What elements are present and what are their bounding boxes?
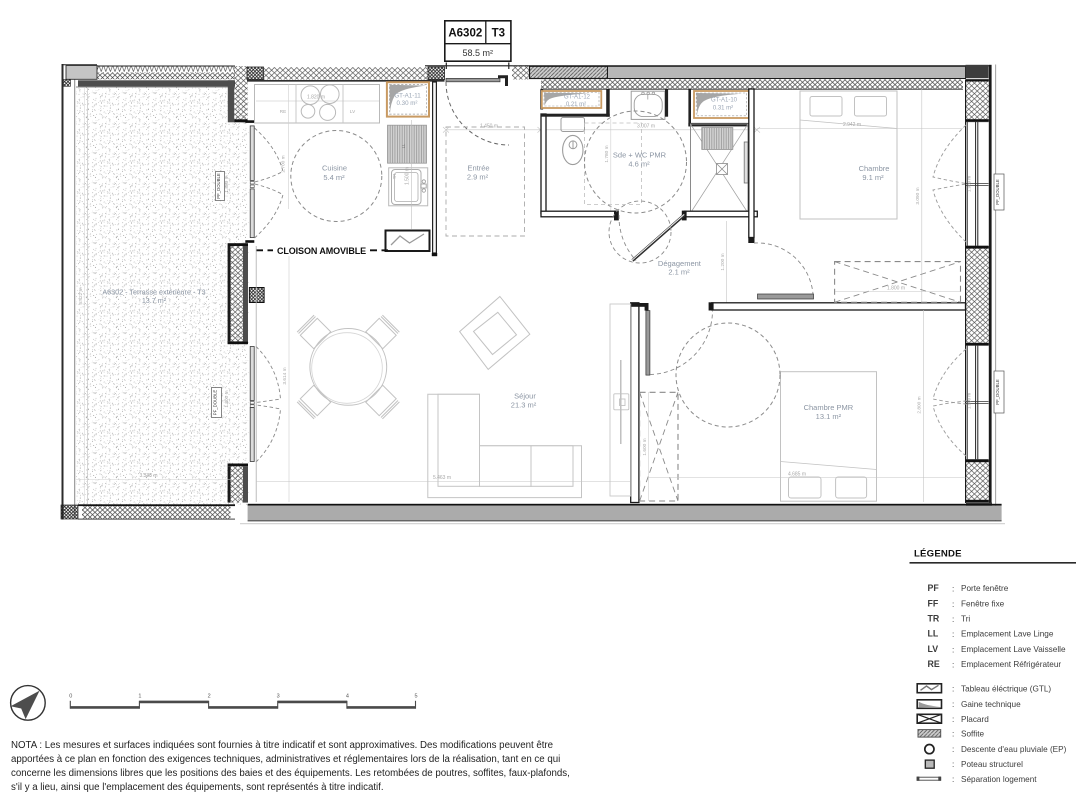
svg-text:1.600 m: 1.600 m — [642, 438, 648, 455]
svg-text::: : — [952, 715, 954, 724]
svg-text:Tri: Tri — [961, 615, 970, 624]
svg-text:0: 0 — [69, 694, 72, 700]
svg-text:1.800 m: 1.800 m — [224, 390, 230, 407]
svg-text:1.980 m: 1.980 m — [967, 176, 972, 193]
svg-text:3.614 m: 3.614 m — [282, 367, 288, 384]
svg-text:RE: RE — [928, 659, 940, 669]
svg-text:Poteau structurel: Poteau structurel — [961, 760, 1023, 769]
svg-text:Cuisine: Cuisine — [322, 164, 347, 173]
svg-text:A6302: A6302 — [448, 28, 482, 40]
svg-text:Emplacement Réfrigérateur: Emplacement Réfrigérateur — [961, 660, 1061, 669]
svg-text:LV: LV — [928, 644, 939, 654]
svg-text:5: 5 — [414, 694, 417, 700]
svg-text:2.1 m²: 2.1 m² — [668, 268, 690, 277]
svg-text::: : — [952, 661, 954, 670]
svg-text:2.800 m: 2.800 m — [917, 396, 923, 413]
svg-text::: : — [952, 700, 954, 709]
svg-text:CLOISON AMOVIBLE: CLOISON AMOVIBLE — [277, 246, 366, 256]
svg-text::: : — [952, 630, 954, 639]
svg-text:concerne les dimensions libres: concerne les dimensions libres que les p… — [11, 768, 570, 779]
svg-text:LL: LL — [401, 143, 406, 148]
svg-text:1.200 m: 1.200 m — [720, 253, 726, 270]
svg-text:Sde + WC PMR: Sde + WC PMR — [613, 151, 667, 160]
svg-text:4.685 m: 4.685 m — [788, 471, 806, 477]
svg-text:TR: TR — [392, 174, 397, 180]
svg-text:GT-A1-10: GT-A1-10 — [711, 98, 738, 104]
svg-text:13.7 m²: 13.7 m² — [142, 296, 167, 305]
svg-text::: : — [952, 760, 954, 769]
svg-text:3.090 m: 3.090 m — [915, 187, 921, 204]
svg-text:PF_DOUBLE: PF_DOUBLE — [216, 173, 221, 199]
svg-text:3.348 m: 3.348 m — [139, 473, 157, 479]
svg-text:FF: FF — [928, 598, 939, 608]
svg-text:PF: PF — [928, 583, 940, 593]
svg-text:1.820 m: 1.820 m — [307, 95, 325, 101]
svg-text:T3: T3 — [492, 28, 505, 40]
svg-text:3.007 m: 3.007 m — [637, 124, 655, 130]
svg-text:PF_DOUBLE: PF_DOUBLE — [995, 179, 1000, 205]
svg-text:5.4 m²: 5.4 m² — [323, 173, 345, 182]
svg-text:GT-A1-11: GT-A1-11 — [394, 92, 421, 99]
svg-text:1.800 m: 1.800 m — [887, 286, 905, 292]
svg-text:Emplacement Lave Vaisselle: Emplacement Lave Vaisselle — [961, 645, 1066, 654]
svg-text:2: 2 — [208, 694, 211, 700]
svg-text:5.422 m: 5.422 m — [78, 287, 84, 304]
svg-text:4.6 m²: 4.6 m² — [628, 160, 650, 169]
svg-text::: : — [952, 645, 954, 654]
svg-text:PF_DOUBLE: PF_DOUBLE — [995, 379, 1000, 405]
svg-text:1: 1 — [138, 694, 141, 700]
svg-text:LL: LL — [928, 629, 939, 639]
svg-text::: : — [952, 615, 954, 624]
svg-text:GT-A1-12: GT-A1-12 — [564, 95, 591, 101]
svg-text:Chambre: Chambre — [859, 164, 890, 173]
svg-text:21.3 m²: 21.3 m² — [511, 401, 537, 410]
svg-text:Tableau éléctrique (GTL): Tableau éléctrique (GTL) — [961, 685, 1051, 694]
svg-text::: : — [952, 745, 954, 754]
svg-text:2.700 m: 2.700 m — [281, 155, 287, 172]
svg-text:Emplacement Lave Linge: Emplacement Lave Linge — [961, 630, 1054, 639]
svg-text:1.780 m: 1.780 m — [604, 145, 610, 162]
svg-text::: : — [952, 775, 954, 784]
svg-text:LÉGENDE: LÉGENDE — [914, 548, 962, 560]
svg-text:0.31 m²: 0.31 m² — [713, 106, 733, 112]
svg-text:1.450 m: 1.450 m — [480, 124, 498, 130]
svg-text:Séjour: Séjour — [514, 392, 536, 401]
svg-text:0.30 m²: 0.30 m² — [397, 100, 418, 107]
svg-text:apportées à ce plan en fonctio: apportées à ce plan en fonction des exig… — [11, 754, 560, 765]
svg-text::: : — [952, 585, 954, 594]
svg-text:Entrée: Entrée — [467, 164, 489, 173]
svg-text:Descente d'eau pluviale (EP): Descente d'eau pluviale (EP) — [961, 745, 1067, 754]
svg-text:3: 3 — [277, 694, 280, 700]
svg-text:NOTA : Les mesures et surfaces: NOTA : Les mesures et surfaces indiquées… — [11, 740, 553, 751]
svg-text:s'il y a lieu, ainsi que l'emp: s'il y a lieu, ainsi que l'emplacement d… — [11, 782, 384, 793]
svg-text:RE: RE — [280, 109, 286, 114]
svg-text:Placard: Placard — [961, 715, 989, 724]
svg-text::: : — [952, 729, 954, 738]
svg-text:Séparation logement: Séparation logement — [961, 775, 1037, 784]
svg-text:Soffite: Soffite — [961, 729, 985, 738]
svg-text:5.463 m: 5.463 m — [433, 475, 451, 481]
svg-text:4: 4 — [346, 694, 349, 700]
svg-text:1.500 m: 1.500 m — [405, 167, 411, 185]
svg-text:58.5 m²: 58.5 m² — [463, 48, 494, 58]
svg-text:Chambre PMR: Chambre PMR — [804, 403, 854, 412]
svg-text:PF_DOUBLE: PF_DOUBLE — [213, 390, 218, 416]
svg-text:2.9 m²: 2.9 m² — [467, 173, 489, 182]
svg-text::: : — [952, 600, 954, 609]
svg-text::: : — [952, 685, 954, 694]
svg-text:Fenêtre fixe: Fenêtre fixe — [961, 599, 1005, 608]
svg-text:TR: TR — [928, 614, 940, 624]
svg-text:9.1 m²: 9.1 m² — [862, 173, 884, 182]
svg-text:1.800 m: 1.800 m — [967, 393, 972, 410]
svg-text:Gaine technique: Gaine technique — [961, 700, 1021, 709]
svg-text:Porte fenêtre: Porte fenêtre — [961, 584, 1009, 593]
svg-text:13.1 m²: 13.1 m² — [816, 412, 842, 421]
svg-text:2.942 m: 2.942 m — [843, 122, 861, 128]
svg-text:0.21 m²: 0.21 m² — [566, 102, 586, 108]
